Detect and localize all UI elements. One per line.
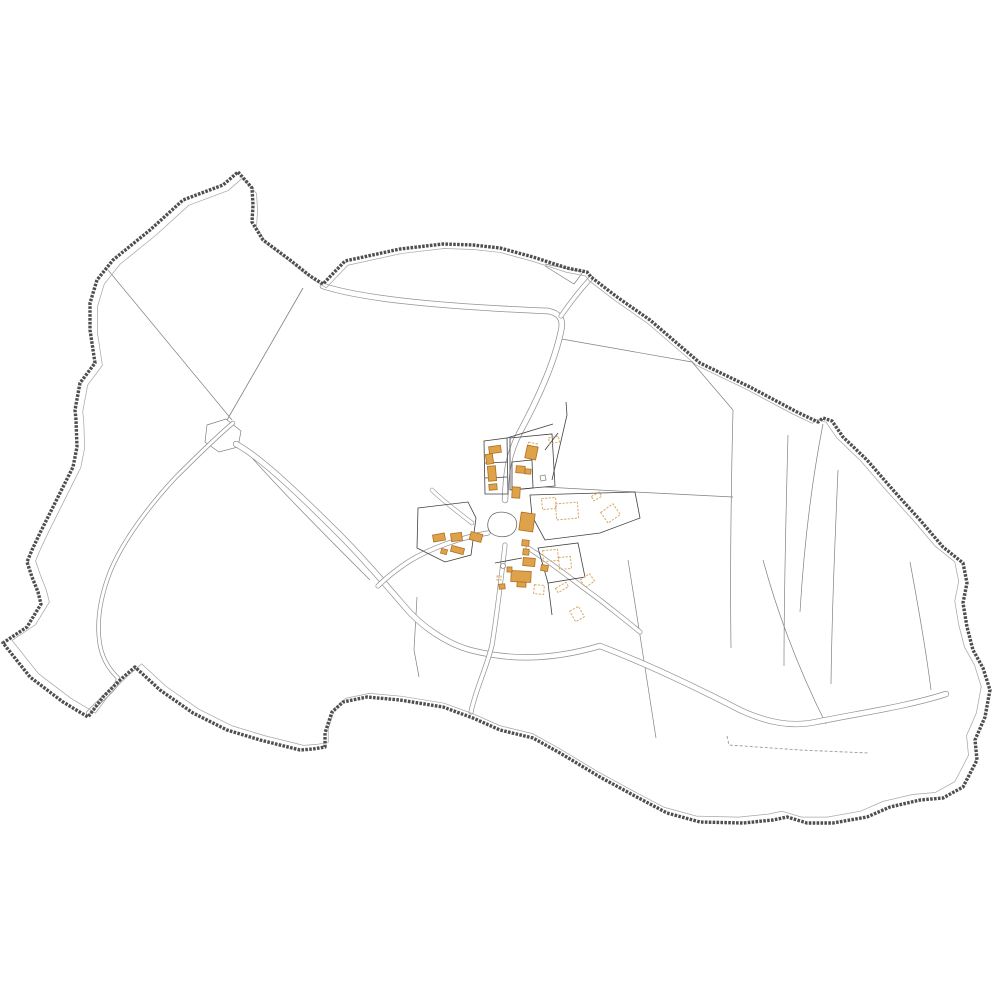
- parcel-strip-1: [731, 410, 733, 648]
- village-pond: [488, 512, 517, 537]
- building-13: [541, 564, 549, 571]
- parcel-line-ne-field: [556, 338, 733, 410]
- building-17: [499, 584, 505, 590]
- building-9: [519, 512, 535, 532]
- village-parcel-inner-box: [512, 460, 533, 490]
- dashed-building-10: [534, 585, 545, 595]
- building-21: [450, 545, 464, 554]
- village-parcel-south-line: [495, 558, 522, 563]
- parcel-line-southwest-1: [414, 597, 419, 677]
- dashed-building-1: [542, 497, 557, 509]
- building-7: [525, 469, 531, 475]
- building-22: [440, 548, 447, 554]
- parcel-line-east-west: [545, 487, 733, 497]
- village-parcel-south-box: [538, 543, 585, 583]
- village-parcel-east: [530, 492, 640, 540]
- building-3: [487, 466, 496, 482]
- building-16: [507, 567, 512, 572]
- southwest-road-casing: [236, 444, 946, 724]
- building-8: [512, 487, 521, 498]
- building-1: [489, 445, 502, 454]
- parcel-line-south-center: [628, 560, 656, 738]
- building-14: [511, 570, 532, 582]
- village-west-road-casing: [378, 533, 488, 586]
- parcel-line-nw-diagonal: [108, 270, 232, 420]
- parcel-line-southwest-2: [245, 450, 370, 580]
- building-10: [522, 540, 529, 547]
- building-5: [525, 445, 538, 460]
- parcel-line-se-diagonal: [763, 560, 826, 724]
- building-4: [489, 484, 497, 491]
- main-road-surface: [323, 286, 562, 500]
- cadastral-map-canvas: [0, 0, 1000, 1000]
- dashed-building-2: [555, 502, 578, 520]
- dashed-building-9: [556, 582, 569, 592]
- commune-boundary: [3, 172, 990, 823]
- well-marker-circle: [501, 564, 506, 569]
- building-19: [450, 532, 462, 541]
- village-parcel-south-stub: [548, 583, 552, 615]
- building-15: [517, 582, 526, 587]
- southwest-road-surface: [236, 444, 946, 724]
- footpath-dashed: [727, 736, 868, 753]
- village-west-road-surface: [378, 533, 488, 586]
- building-12: [523, 557, 536, 566]
- road-boundary-spur-surface: [561, 278, 591, 316]
- farm-track-surface: [432, 490, 472, 523]
- dashed-building-12: [570, 606, 585, 621]
- parcel-line-far-right: [910, 562, 931, 690]
- building-11: [523, 549, 530, 556]
- main-road-casing: [323, 286, 562, 500]
- parcel-line-village-ne-corner: [545, 433, 558, 450]
- parcel-strip-3: [831, 470, 838, 684]
- building-6: [516, 466, 526, 474]
- building-18: [432, 533, 445, 542]
- village-east-road-surface: [528, 548, 640, 632]
- map-page: [0, 0, 1000, 1000]
- dashed-building-3: [601, 504, 621, 523]
- village-south-road-casing: [471, 545, 505, 712]
- well-marker-square: [540, 475, 546, 481]
- building-2: [485, 454, 493, 465]
- parcel-line-notch-south: [800, 424, 823, 612]
- parcel-line-steep-diagonal: [223, 288, 303, 427]
